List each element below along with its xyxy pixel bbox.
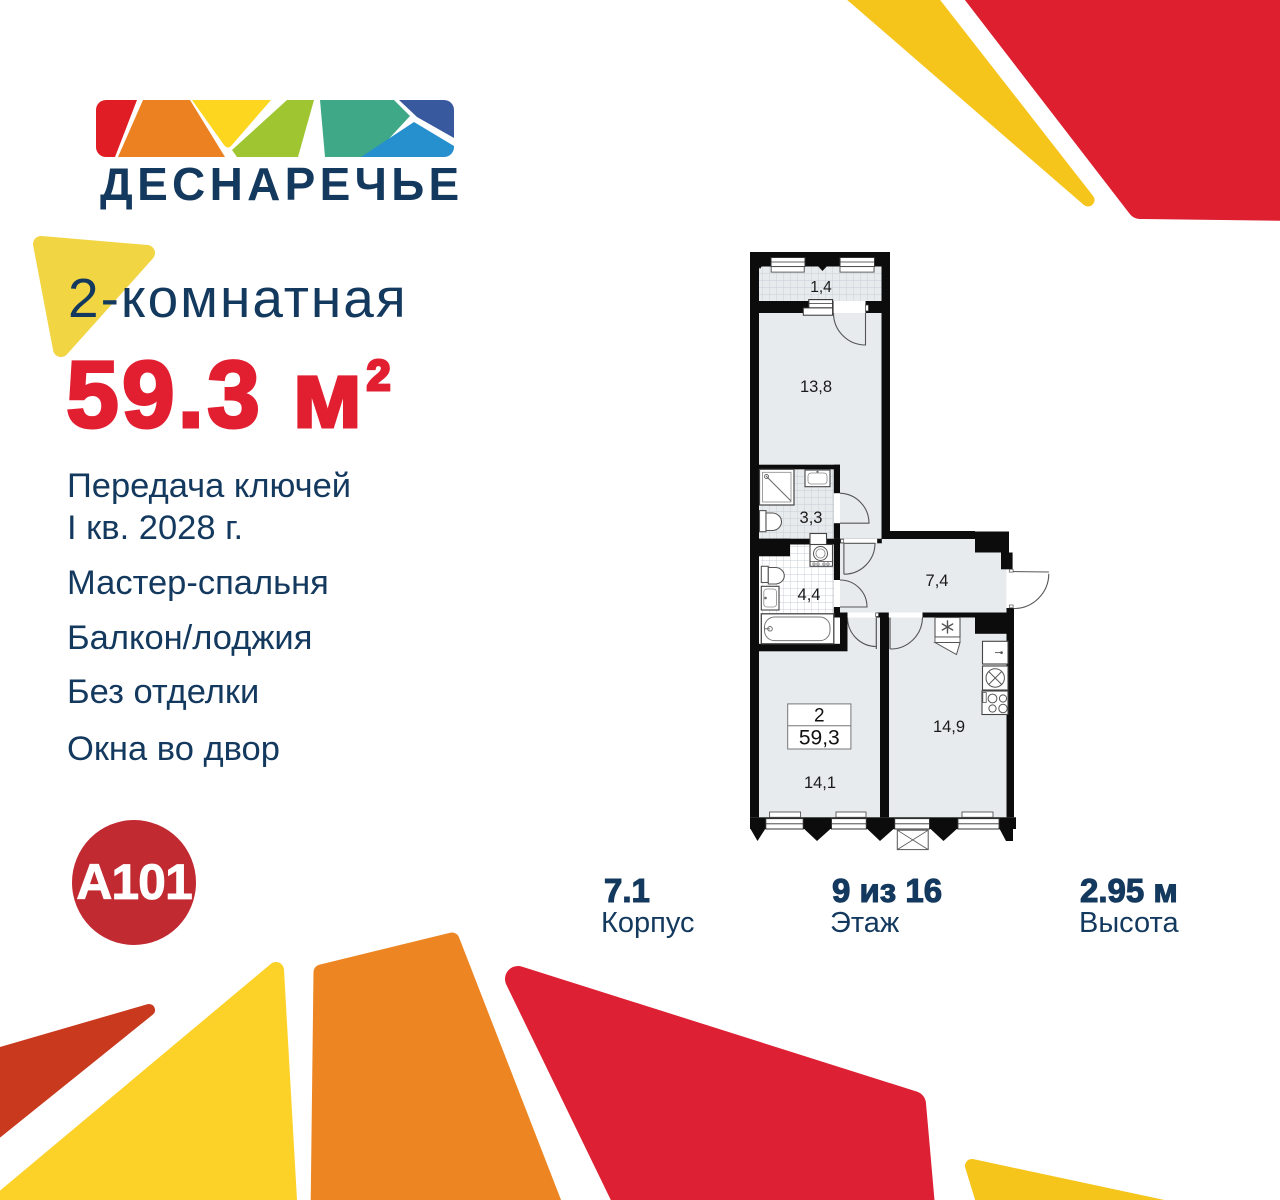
svg-text:2: 2 [814,706,825,727]
svg-text:59,3: 59,3 [799,727,840,750]
svg-text:13,8: 13,8 [800,378,832,396]
svg-text:14,9: 14,9 [933,718,965,736]
svg-text:14,1: 14,1 [804,774,836,792]
svg-text:1,4: 1,4 [810,279,832,296]
svg-text:4,4: 4,4 [798,586,821,604]
svg-text:7,4: 7,4 [926,572,949,590]
svg-text:3,3: 3,3 [800,509,823,527]
